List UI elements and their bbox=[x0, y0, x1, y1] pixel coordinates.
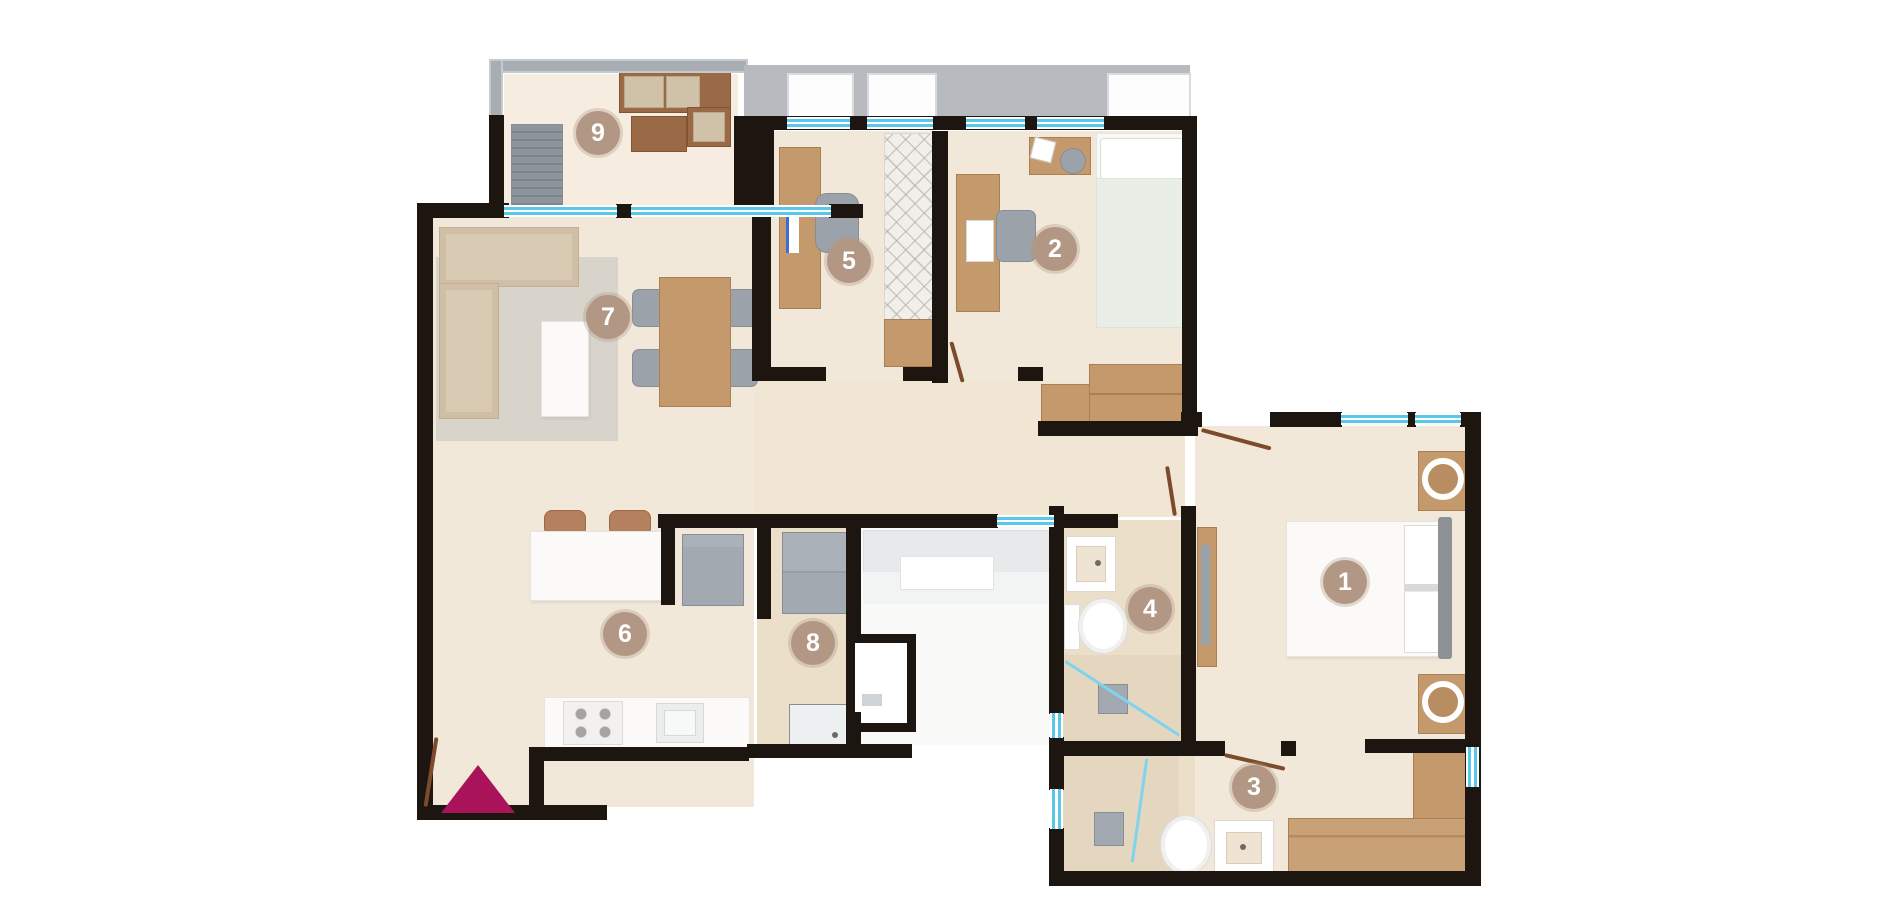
closet-wardrobe-right bbox=[1413, 744, 1468, 826]
room-badge-3: 3 bbox=[1232, 765, 1276, 809]
bedroom2-chair bbox=[996, 210, 1036, 262]
balcony-railing-top bbox=[489, 59, 748, 73]
bedroom1-lamp bbox=[1422, 458, 1464, 500]
wall bbox=[1270, 412, 1342, 427]
bathroom4-washbasin-bowl bbox=[1076, 546, 1106, 582]
window bbox=[966, 117, 1025, 129]
wall bbox=[1049, 506, 1064, 714]
wall bbox=[752, 367, 826, 381]
wall bbox=[846, 712, 861, 758]
sofa-horizontal bbox=[439, 227, 579, 287]
window bbox=[787, 117, 850, 129]
room-badge-6: 6 bbox=[603, 612, 647, 656]
window bbox=[1415, 413, 1461, 425]
room-badge-4: 4 bbox=[1128, 587, 1172, 631]
fridge bbox=[682, 534, 744, 606]
wall bbox=[1281, 741, 1296, 756]
wall bbox=[616, 204, 632, 218]
balcony-sideboard-panel bbox=[666, 76, 700, 108]
stove bbox=[563, 701, 623, 745]
bedroom2-lamp bbox=[1060, 148, 1086, 174]
bathroom4-faucet bbox=[1095, 560, 1101, 566]
sofa-vertical bbox=[439, 283, 499, 419]
room-badge-5: 5 bbox=[827, 239, 871, 283]
bedroom1-pillows bbox=[1404, 525, 1442, 653]
balcony-seat-cushion bbox=[693, 112, 725, 142]
balcony-sideboard-panel bbox=[624, 76, 664, 108]
bathroom4-toilet bbox=[1078, 598, 1128, 654]
wall bbox=[1038, 421, 1198, 436]
balcony-table bbox=[631, 116, 687, 152]
window bbox=[997, 515, 1054, 527]
wall bbox=[734, 116, 774, 216]
window bbox=[1466, 747, 1479, 787]
wall bbox=[932, 131, 948, 383]
bathroom3-faucet bbox=[1240, 844, 1246, 850]
wall bbox=[417, 203, 433, 820]
balcony-railing-left bbox=[489, 59, 503, 119]
kitchen-island bbox=[530, 531, 666, 601]
window bbox=[1050, 789, 1063, 829]
kitchen-sink-basin bbox=[664, 710, 696, 736]
room-badge-7: 7 bbox=[586, 295, 630, 339]
wall bbox=[661, 527, 675, 605]
bedroom2-monitor bbox=[966, 220, 994, 262]
wall bbox=[932, 367, 948, 381]
wall bbox=[1465, 412, 1481, 886]
wall bbox=[757, 527, 771, 619]
washer-dryer bbox=[782, 532, 850, 614]
bathroom3-shower-head bbox=[1094, 812, 1124, 846]
wall bbox=[846, 514, 861, 636]
bedroom1-wardrobe-front bbox=[1201, 545, 1210, 645]
wall bbox=[1049, 871, 1481, 886]
wall bbox=[1049, 741, 1225, 756]
corridor-counter-top bbox=[900, 556, 994, 590]
room-badge-8: 8 bbox=[791, 621, 835, 665]
bedroom2-duvet bbox=[1096, 178, 1188, 328]
water-heater bbox=[862, 694, 882, 706]
wall bbox=[1182, 116, 1197, 436]
coffee-table bbox=[541, 321, 589, 417]
wall bbox=[1365, 739, 1465, 753]
wall bbox=[658, 514, 998, 528]
utility-sink-drain bbox=[832, 732, 838, 738]
window bbox=[867, 117, 933, 129]
room-badge-9: 9 bbox=[576, 111, 620, 155]
entrance-marker bbox=[441, 765, 515, 813]
wall bbox=[829, 204, 863, 218]
window bbox=[1037, 117, 1104, 129]
dining-table bbox=[659, 277, 731, 407]
wall bbox=[489, 115, 504, 207]
room-badge-2: 2 bbox=[1033, 227, 1077, 271]
window bbox=[1341, 413, 1408, 425]
wall bbox=[529, 747, 749, 761]
bedroom2-dresser bbox=[1041, 384, 1093, 424]
window-balcony-door bbox=[504, 205, 617, 217]
bedroom1-headboard bbox=[1438, 517, 1452, 659]
wall bbox=[903, 367, 935, 381]
bedroom2-dresser bbox=[1089, 364, 1187, 424]
window bbox=[1050, 713, 1063, 738]
bedroom1-lamp bbox=[1422, 681, 1464, 723]
wall bbox=[1181, 506, 1196, 746]
closet-dresser-bottom bbox=[1288, 818, 1468, 874]
bathroom3-toilet bbox=[1160, 815, 1212, 875]
wall bbox=[752, 206, 771, 380]
window-balcony-door bbox=[631, 205, 831, 217]
wall bbox=[1018, 367, 1043, 381]
balcony-bench bbox=[511, 124, 563, 206]
floor-plan: 1 2 3 4 5 6 7 8 9 bbox=[0, 0, 1900, 900]
room-badge-1: 1 bbox=[1323, 560, 1367, 604]
bedroom2-pillow bbox=[1100, 138, 1184, 180]
